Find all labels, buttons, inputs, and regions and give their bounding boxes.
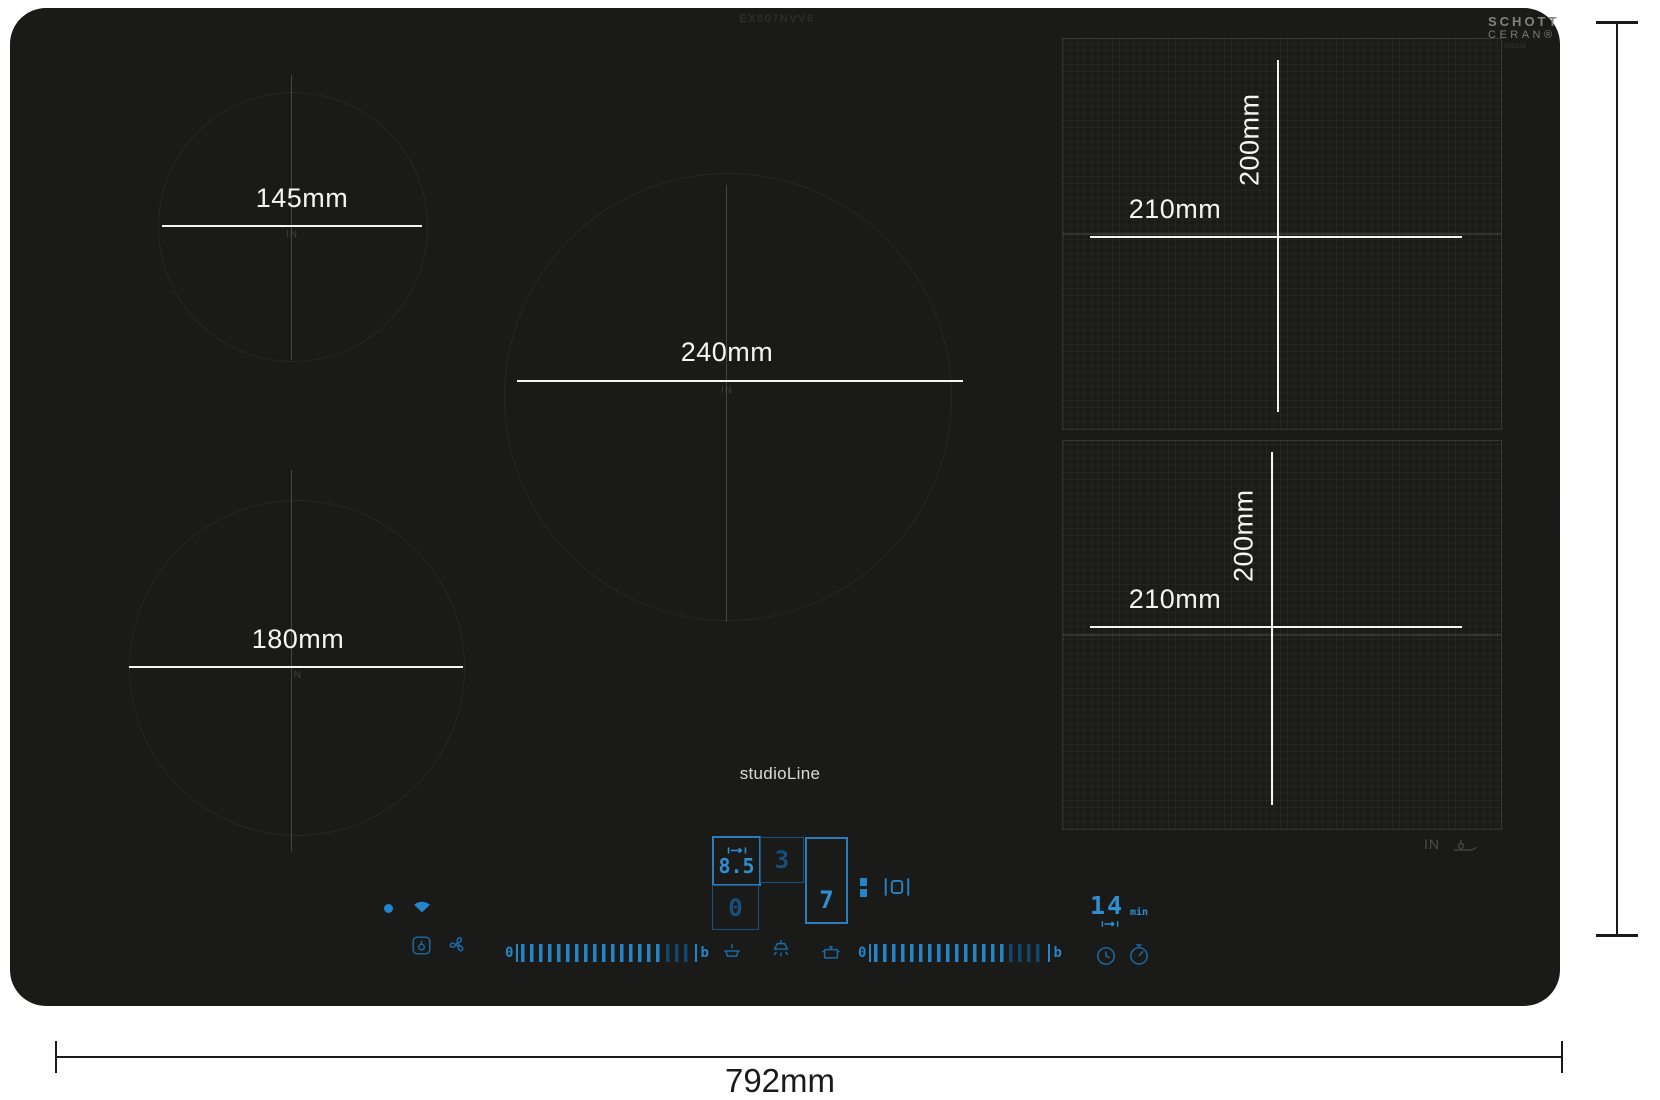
slider-right-inactive-ticks[interactable] — [1009, 944, 1045, 962]
pot-icon[interactable] — [820, 942, 842, 961]
slider-left-inactive-ticks[interactable] — [666, 944, 692, 962]
flex-bottom-depth-line — [1271, 452, 1273, 805]
burner3-in-marking: IN — [266, 670, 326, 681]
overall-width-cap-right — [1561, 1041, 1563, 1073]
slider-left-end-tick — [695, 944, 697, 962]
flex-zone-bottom-rear-half — [1062, 635, 1502, 830]
burner1-ring — [158, 92, 428, 362]
slider-right-min-label: 0 — [858, 944, 866, 962]
timer-value: 14 — [1090, 891, 1124, 920]
flex-zone-top — [1062, 38, 1502, 430]
flex-level-value: 8.5 — [718, 855, 754, 877]
burner3-ring — [129, 500, 465, 836]
slider-right-active-ticks[interactable] — [874, 944, 1006, 962]
slider-right-start-tick — [869, 944, 871, 962]
power-slider-right[interactable]: 0 b — [858, 943, 1062, 963]
glass-in-marking: IN — [1424, 836, 1440, 852]
series-label: studioLine — [700, 764, 860, 784]
kitchen-timer-icon[interactable] — [1129, 943, 1149, 966]
pan-move-icon[interactable] — [884, 876, 910, 898]
flex-bottom-width-line — [1090, 626, 1462, 628]
bottom-zone-display[interactable]: 0 — [712, 885, 759, 930]
slider-left-boost-label: b — [700, 944, 708, 962]
overall-width-label: 792mm — [680, 1062, 880, 1100]
pan-transfer-icon[interactable] — [720, 942, 744, 960]
product-dimension-diagram: EX807NVV6 SCHOTT CERAN® 9001708235 210mm… — [0, 0, 1660, 1100]
burner1-in-marking: IN — [262, 229, 322, 240]
timer-unit: min — [1130, 907, 1148, 918]
right-zone-display[interactable]: 7 — [805, 837, 848, 924]
burner2-in-marking: IN — [697, 385, 757, 396]
right-zone-value: 7 — [819, 886, 833, 914]
flex-level-display[interactable]: 8.5 — [712, 836, 761, 886]
timer-flex-zone-icon — [1101, 920, 1119, 928]
pan-sensor-icon — [1452, 838, 1478, 854]
flex-zone-top-rear-half — [1062, 234, 1502, 430]
burner2-diameter-line — [517, 380, 963, 382]
flex-zone-bottom — [1062, 440, 1502, 830]
overall-depth-cap-top — [1596, 21, 1638, 24]
wipe-protection-icon[interactable] — [412, 936, 431, 955]
burner3-diameter-line — [129, 666, 463, 668]
slider-left-active-ticks[interactable] — [521, 944, 663, 962]
bottom-zone-value: 0 — [728, 894, 742, 922]
burner1-diameter-line — [162, 225, 422, 227]
overall-width-line — [55, 1056, 1563, 1058]
overall-depth-cap-bottom — [1596, 934, 1638, 937]
hood-level-display[interactable]: 3 — [760, 837, 804, 883]
overall-width-cap-left — [55, 1041, 57, 1073]
flex-bottom-depth-label: 200mm — [1226, 462, 1262, 610]
flex-top-depth-line — [1277, 60, 1279, 412]
slider-right-end-tick — [1048, 944, 1050, 962]
power-indicator-dot — [384, 904, 393, 913]
burner2-ring — [504, 173, 952, 621]
model-number: EX807NVV6 — [697, 13, 857, 25]
clock-icon[interactable] — [1096, 946, 1116, 966]
hood-level-value: 3 — [775, 846, 789, 874]
power-slider-left[interactable]: 0 b — [505, 943, 709, 963]
hood-light-icon[interactable] — [771, 938, 791, 961]
slider-left-min-label: 0 — [505, 944, 513, 962]
burner2-diameter-label: 240mm — [627, 337, 827, 368]
hood-fan-icon[interactable] — [447, 934, 468, 955]
pause-icon[interactable] — [860, 878, 868, 898]
overall-depth-label: 512mm — [1528, 415, 1568, 575]
flex-top-depth-label: 200mm — [1232, 66, 1268, 214]
flex-top-width-line — [1090, 236, 1462, 238]
overall-depth-line — [1616, 22, 1618, 936]
glass-brand-line1: SCHOTT — [1488, 14, 1559, 29]
burner3-diameter-label: 180mm — [198, 624, 398, 655]
burner1-diameter-label: 145mm — [202, 183, 402, 214]
wifi-icon[interactable] — [412, 899, 432, 914]
slider-right-boost-label: b — [1053, 944, 1061, 962]
slider-left-start-tick — [516, 944, 518, 962]
